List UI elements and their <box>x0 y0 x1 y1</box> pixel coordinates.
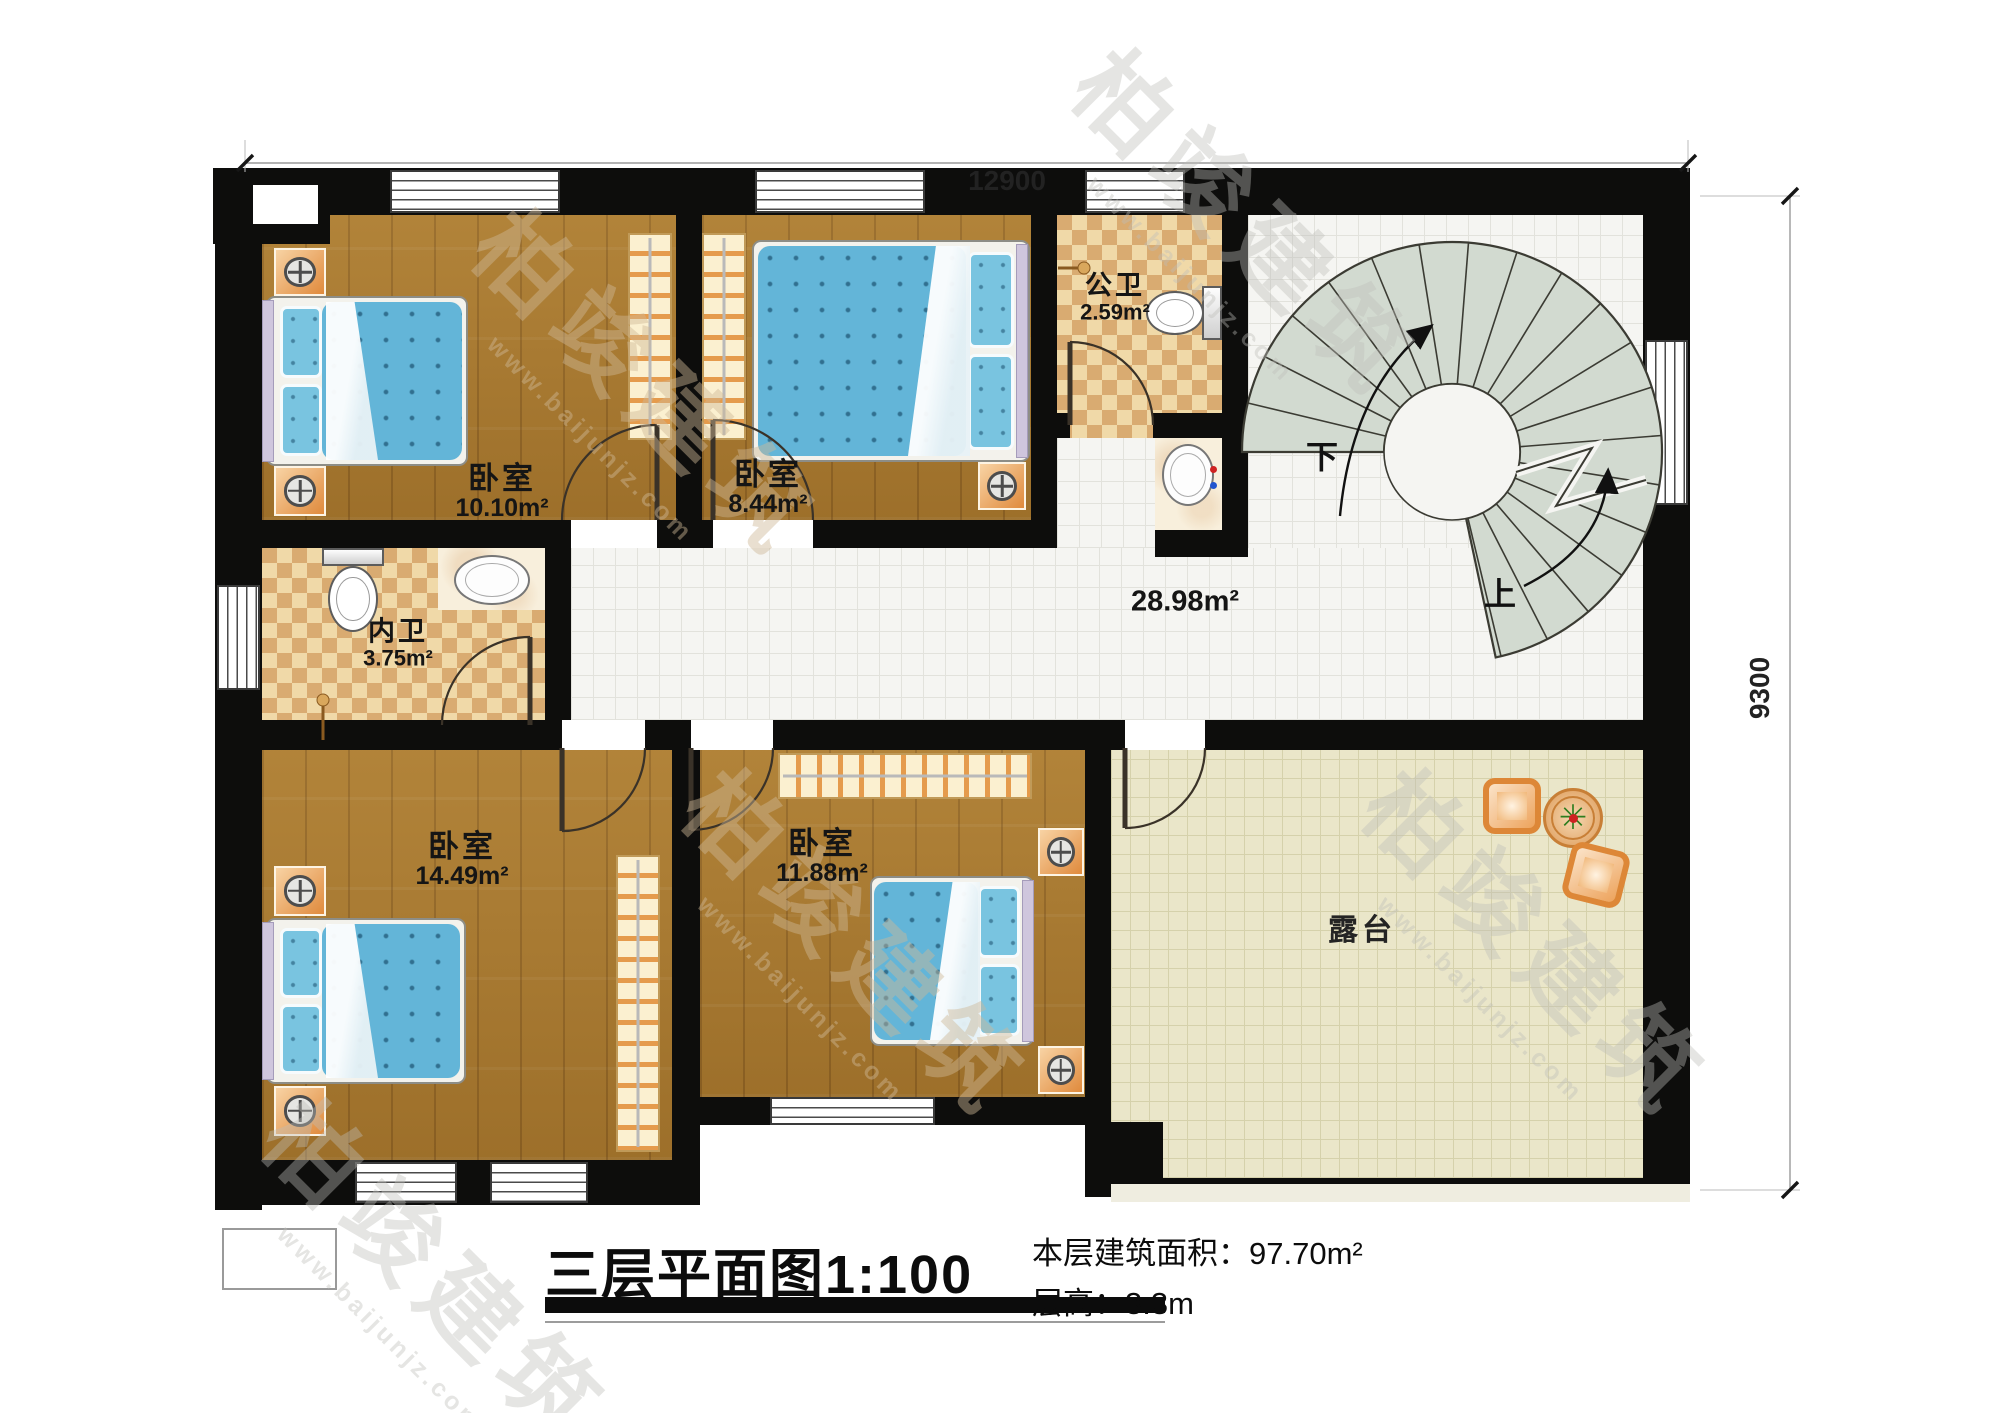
faucet-dot-cold <box>1210 482 1217 489</box>
bedroom-bl-label: 卧室 14.49m² <box>415 830 508 890</box>
toilet-public-tank <box>1202 286 1222 340</box>
bed-tl-headboard <box>262 300 274 462</box>
bedroom-tm-label: 卧室 8.44m² <box>728 458 807 518</box>
bath-inner-label: 内卫 3.75m² <box>363 618 433 671</box>
exterior-step <box>222 1228 337 1290</box>
bed-bm-pillow-1 <box>978 886 1020 958</box>
bed-tl-pillow-1 <box>280 306 322 378</box>
wall-bedroom-bl-bottom <box>215 1160 700 1205</box>
bath-lobby-floor <box>1057 438 1155 548</box>
lamp-icon <box>284 875 317 906</box>
lamp-icon <box>284 475 317 506</box>
room-area: 3.75m² <box>363 647 433 671</box>
window-bath-inner <box>217 585 260 690</box>
faucet-dot-hot <box>1210 466 1217 473</box>
wall-corridor-south-a <box>215 720 562 750</box>
lamp-icon <box>284 1095 317 1126</box>
terrace-table: ✳ <box>1543 788 1603 848</box>
bed-bm-headboard <box>1022 880 1034 1042</box>
room-area: 11.88m² <box>776 860 868 887</box>
wardrobe-tm <box>702 233 746 440</box>
bed-tm-pillow-2 <box>968 354 1014 450</box>
nightstand-bm-bottom <box>1038 1046 1084 1094</box>
wall-bath-inner-right <box>545 520 571 720</box>
dimension-top-value: 12900 <box>968 165 1046 197</box>
window-bath-public <box>1085 170 1185 213</box>
nightstand-tm <box>978 462 1026 510</box>
bedroom-bm-label: 卧室 11.88m² <box>776 827 868 887</box>
wall-bath-public-bottom <box>1153 413 1222 438</box>
room-area: 10.10m² <box>455 495 548 522</box>
nightstand-bl-top <box>274 866 326 916</box>
wall-bedroom-bm-right <box>1085 750 1111 1125</box>
room-name: 公卫 <box>1080 272 1150 301</box>
terrace-chair-1 <box>1483 778 1541 834</box>
toilet-public-bowl <box>1146 291 1204 335</box>
wall-corridor-south-d <box>1205 720 1643 750</box>
stair-down-label: 下 <box>1306 432 1338 478</box>
hall-floor <box>571 548 1643 720</box>
bed-tl-pillow-2 <box>280 384 322 456</box>
nightstand-bm-top <box>1038 828 1084 876</box>
wardrobe-bl <box>616 855 660 1152</box>
hall-area-label: 28.98m² <box>1131 586 1239 619</box>
window-bedroom-tm <box>755 170 925 213</box>
room-area: 8.44m² <box>728 491 807 518</box>
bed-tm-pillow-1 <box>968 252 1014 348</box>
nightstand-tl-top <box>274 248 326 296</box>
wall-right <box>1643 168 1690 1195</box>
wall-corridor-south-b <box>645 720 691 750</box>
bath-public-label: 公卫 2.59m² <box>1080 272 1150 325</box>
wall-south-top-a <box>262 520 562 548</box>
wall-bath-public-right <box>1222 215 1248 557</box>
room-name: 卧室 <box>415 830 508 863</box>
terrace-label: 露台 <box>1328 905 1396 949</box>
lamp-icon <box>284 257 317 287</box>
wall-south-top-b <box>657 520 713 548</box>
nightstand-tl-bottom <box>274 466 326 516</box>
floor-plan-canvas: ✳ <box>0 0 2000 1413</box>
corner-niche <box>253 185 318 224</box>
wardrobe-bm <box>778 753 1032 799</box>
room-name: 卧室 <box>776 827 868 860</box>
window-bedroom-bl-1 <box>355 1162 457 1203</box>
bed-bm-pillow-2 <box>978 964 1020 1036</box>
window-bedroom-bm <box>770 1097 935 1125</box>
stair-up-label: 上 <box>1484 569 1516 615</box>
lamp-icon <box>1047 1055 1076 1085</box>
window-bedroom-tl <box>390 170 560 213</box>
room-area: 14.49m² <box>415 863 508 890</box>
bedroom-tl-label: 卧室 10.10m² <box>455 462 548 522</box>
wardrobe-tl <box>628 233 672 440</box>
bed-bl-pillow-1 <box>280 928 322 998</box>
wall-south-top-c <box>813 520 1057 548</box>
lamp-icon <box>987 471 1017 501</box>
room-name: 卧室 <box>728 458 807 491</box>
nightstand-bl-bottom <box>274 1086 326 1136</box>
sink-alcove <box>1162 444 1214 506</box>
room-area: 2.59m² <box>1080 301 1150 325</box>
plant-icon: ✳ <box>1559 801 1588 835</box>
wall-bedrooms-top-divider <box>676 215 702 520</box>
wall-bedrooms-bottom-divider <box>672 750 700 1160</box>
wall-corridor-south-c <box>773 720 1125 750</box>
dimension-right-value: 9300 <box>1744 657 1776 719</box>
window-bedroom-bl-2 <box>490 1162 588 1203</box>
lamp-icon <box>1047 837 1076 867</box>
terrace-apron <box>1111 1184 1690 1202</box>
bed-bl-pillow-2 <box>280 1004 322 1074</box>
wall-bedroom-tm-right <box>1031 215 1057 520</box>
window-stair-hall <box>1645 340 1688 505</box>
bed-tm-headboard <box>1016 244 1028 458</box>
wall-bath-public-bottom-stub <box>1057 413 1070 438</box>
bed-bl-headboard <box>262 922 274 1080</box>
floor-height-line: 层高：3.3m <box>1032 1278 1194 1323</box>
room-name: 卧室 <box>455 462 548 495</box>
room-name: 内卫 <box>363 618 433 647</box>
sink-inner <box>454 555 530 605</box>
floor-area-line: 本层建筑面积：97.70m² <box>1032 1228 1363 1273</box>
toilet-inner-tank <box>322 548 384 566</box>
wall-alcove-bottom <box>1155 530 1248 557</box>
